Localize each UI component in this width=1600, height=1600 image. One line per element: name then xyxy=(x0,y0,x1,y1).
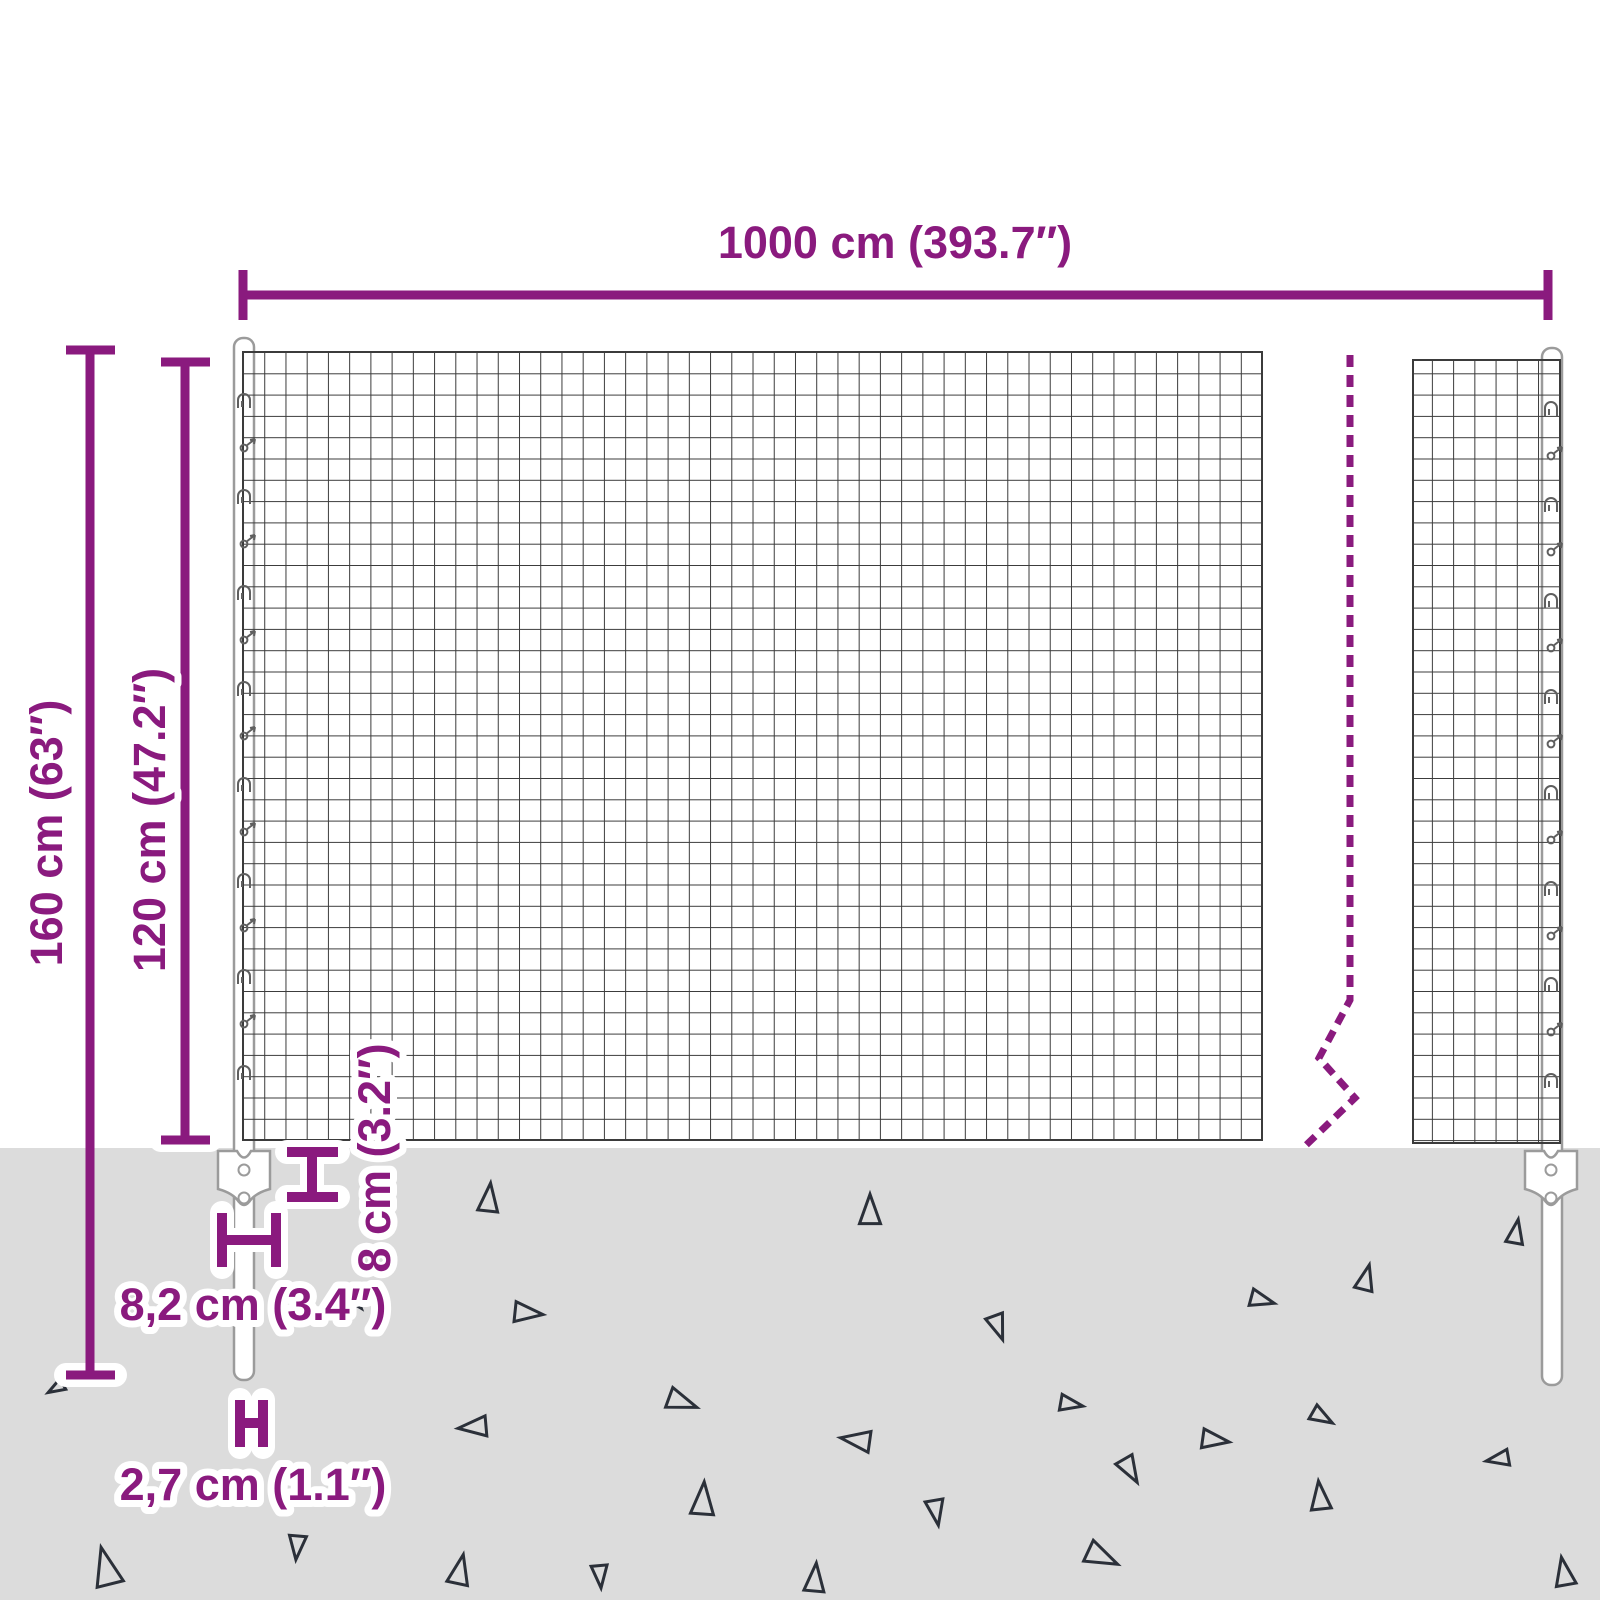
break-line xyxy=(1301,355,1355,1150)
ground-clearance-label: 8 cm (3.2″) xyxy=(349,1043,400,1272)
total-height-label: 160 cm (63″) xyxy=(21,700,72,967)
mesh-panel-main xyxy=(243,352,1262,1140)
diagram-canvas: 1000 cm (393.7″) 160 cm (63″) 120 cm (47… xyxy=(0,0,1600,1600)
mesh-panel-right xyxy=(1413,360,1560,1143)
mesh-height-label: 120 cm (47.2″) xyxy=(124,668,175,972)
fence-dimension-diagram: 1000 cm (393.7″) 160 cm (63″) 120 cm (47… xyxy=(0,0,1600,1600)
dimension-width: 1000 cm (393.7″) xyxy=(243,217,1548,320)
dimension-mesh-height: 120 cm (47.2″) xyxy=(124,362,210,1140)
width-label: 1000 cm (393.7″) xyxy=(718,217,1072,268)
anchor-width-label: 8,2 cm (3.4″) xyxy=(120,1279,387,1330)
post-width-label: 2,7 cm (1.1″) xyxy=(120,1459,387,1510)
